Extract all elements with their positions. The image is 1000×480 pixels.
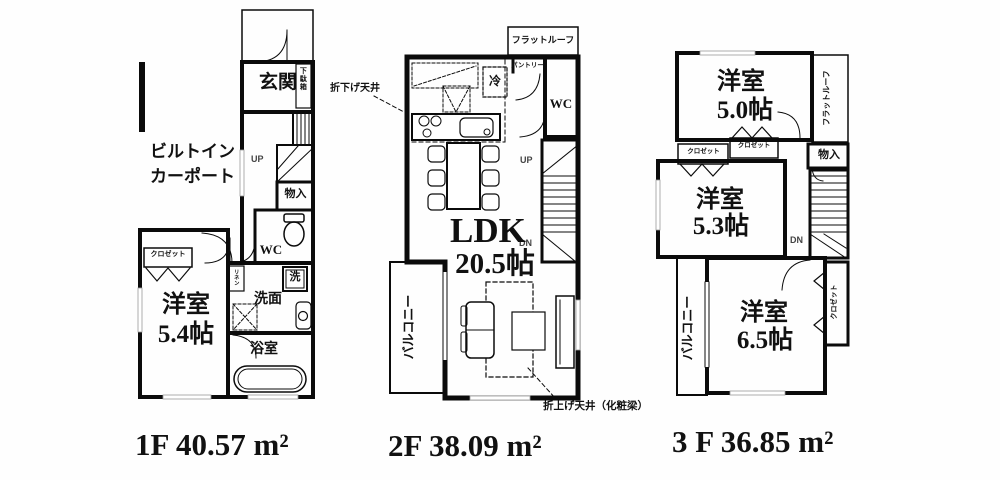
tv-board-icon (556, 296, 574, 368)
closet-folding-door (146, 268, 190, 281)
bedroom-5-4-size: 5.4帖 (141, 322, 231, 348)
balcony-label-2f: バルコニー (402, 277, 422, 377)
vanity-counter-icon (233, 304, 257, 330)
dining-table-icon (428, 143, 499, 210)
floor2-kitchen (412, 60, 507, 142)
floor2-door-arcs (516, 74, 545, 137)
lowered-ceiling-note: 折下げ天井 (330, 84, 380, 95)
floor1-area-label: 1F 40.57 m² (135, 429, 289, 462)
pantry-label: パントリー (511, 63, 544, 70)
flat-roof-label-3f: フラットルーフ (823, 48, 837, 148)
bathtub-icon (234, 366, 306, 392)
entrance-label: 玄関 (250, 73, 306, 93)
ldk-name-label: LDK (450, 213, 522, 250)
sofa-icon (461, 302, 494, 358)
raised-ceiling-note: 折上げ天井（化粧梁） (543, 401, 648, 412)
floor2-stairs-icon (542, 140, 578, 262)
storage-label-3f: 物入 (810, 150, 848, 162)
shoe-cabinet-label: 下駄箱 (299, 67, 306, 91)
up-label-1f: UP (251, 155, 264, 164)
floor3-area-label: 3 F 36.85 m² (672, 426, 833, 459)
floor2-area-label: 2F 38.09 m² (388, 430, 542, 463)
fridge-label: 冷 (487, 75, 503, 88)
washroom-label: 洗面 (246, 293, 290, 308)
bedroom-5-0-name: 洋室 (705, 70, 777, 95)
carport-label-line1: ビルトイン (145, 143, 240, 161)
cupboard-icon (412, 63, 478, 112)
bedroom-5-3-size: 5.3帖 (682, 214, 760, 240)
bedroom-6-5-name: 洋室 (733, 301, 795, 326)
wc-label-1f: WC (256, 243, 286, 257)
flat-roof-label-2f: フラットルーフ (508, 36, 578, 45)
laundry-label: 洗 (284, 272, 306, 284)
bedroom-5-4-name: 洋室 (148, 293, 224, 318)
bathroom-label: 浴室 (242, 343, 286, 358)
up-label-2f: UP (520, 156, 533, 165)
closet-mid-label: クロゼット (730, 143, 778, 150)
closet-label-1f: クロゼット (145, 251, 191, 258)
carport-label-line2: カーポート (145, 168, 240, 186)
coffee-table-icon (512, 312, 545, 350)
floor2-living (461, 282, 574, 377)
toilet-icon (284, 214, 304, 246)
floor3-stairs-icon (810, 170, 848, 258)
bedroom-6-5-size: 6.5帖 (725, 328, 805, 354)
kitchen-counter-icon (412, 114, 500, 140)
storage-label-1f: 物入 (279, 189, 312, 201)
floor1-stairs-icon (277, 112, 313, 182)
wc-label-2f: WC (546, 97, 576, 111)
dn-label-3f: DN (790, 236, 803, 245)
carport-left-wall (139, 62, 145, 132)
entrance-porch (242, 10, 313, 62)
floorplan-page: 玄関 下駄箱 ビルトイン カーポート UP 物入 WC クロゼット リネン 洋室… (0, 0, 1000, 480)
ldk-size-label: 20.5帖 (443, 249, 547, 279)
closet-right-label: クロゼット (831, 252, 843, 352)
balcony-label-3f: バルコニー (681, 278, 701, 378)
bedroom-5-3-name: 洋室 (690, 188, 750, 213)
linen-label: リネン (232, 269, 238, 286)
bedroom-5-0-size: 5.0帖 (700, 98, 790, 124)
washbasin-icon (296, 302, 311, 329)
closet-left-label: クロゼット (679, 149, 728, 156)
